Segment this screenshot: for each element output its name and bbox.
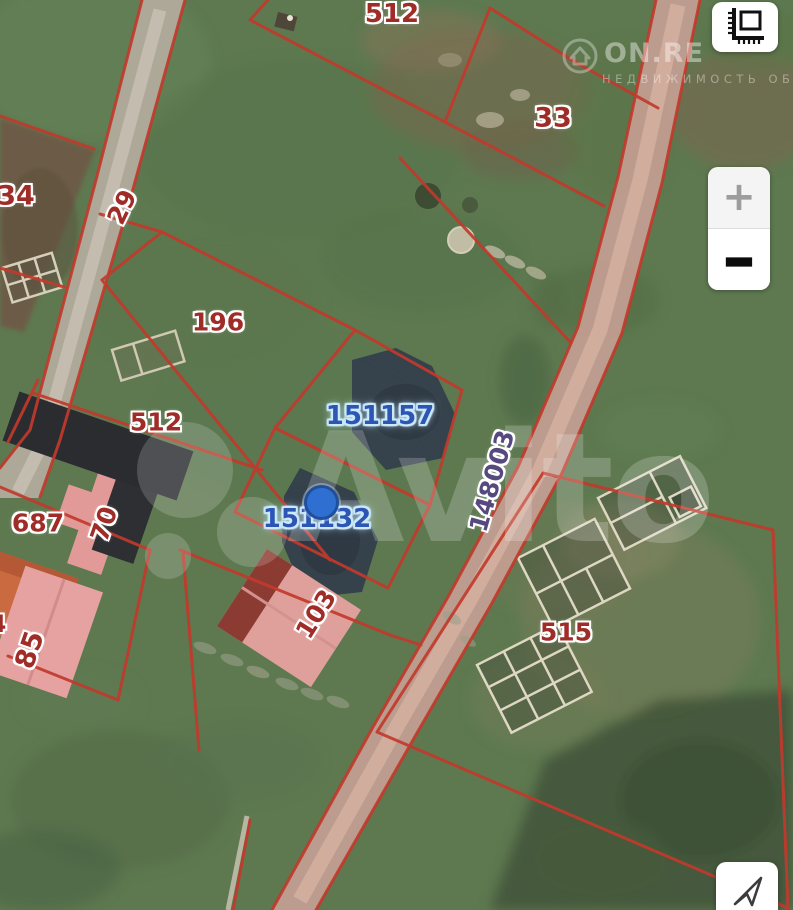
map-pin-marker: [304, 485, 339, 520]
zoom-out-button[interactable]: −: [708, 229, 770, 291]
ruler-icon: [725, 7, 765, 47]
navigation-arrow-icon: [727, 870, 767, 910]
locate-button[interactable]: [716, 862, 778, 910]
minus-icon: −: [721, 213, 756, 290]
zoom-control: + −: [708, 167, 770, 290]
satellite-map-image: [0, 0, 793, 910]
measure-button[interactable]: [712, 2, 778, 52]
map-canvas[interactable]: Avito ON.RE НЕДВИЖИМОСТЬ ОБЛ 512 33 34 2…: [0, 0, 793, 910]
